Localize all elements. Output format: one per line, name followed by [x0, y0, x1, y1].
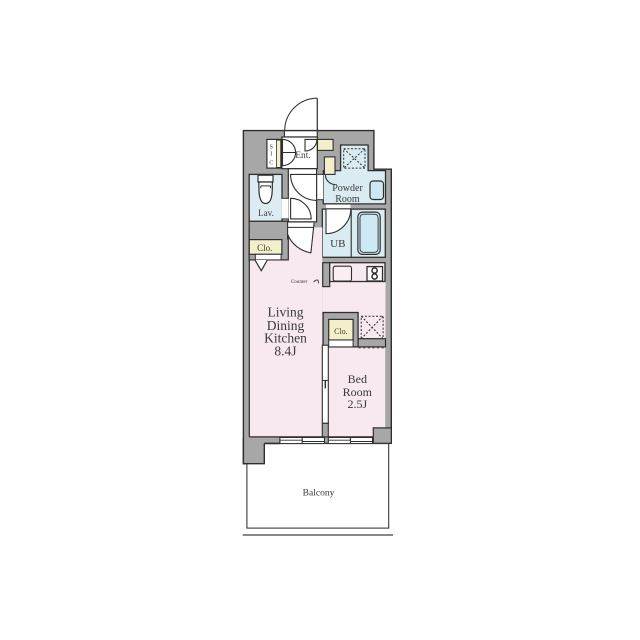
svg-text:Balcony: Balcony — [303, 489, 335, 499]
svg-text:Room: Room — [335, 194, 360, 205]
svg-text:S: S — [270, 145, 273, 151]
svg-text:Clo.: Clo. — [257, 243, 272, 253]
svg-text:Clo.: Clo. — [334, 327, 348, 336]
svg-text:Powder: Powder — [332, 183, 363, 194]
svg-text:Counter: Counter — [291, 279, 308, 285]
svg-text:2.5J: 2.5J — [347, 397, 367, 411]
svg-text:Ent.: Ent. — [295, 151, 311, 161]
svg-text:C: C — [269, 161, 273, 167]
svg-text:Lav.: Lav. — [258, 208, 274, 218]
svg-text:I: I — [270, 152, 272, 158]
svg-text:UB: UB — [330, 238, 345, 250]
svg-text:8.4J: 8.4J — [274, 344, 296, 359]
